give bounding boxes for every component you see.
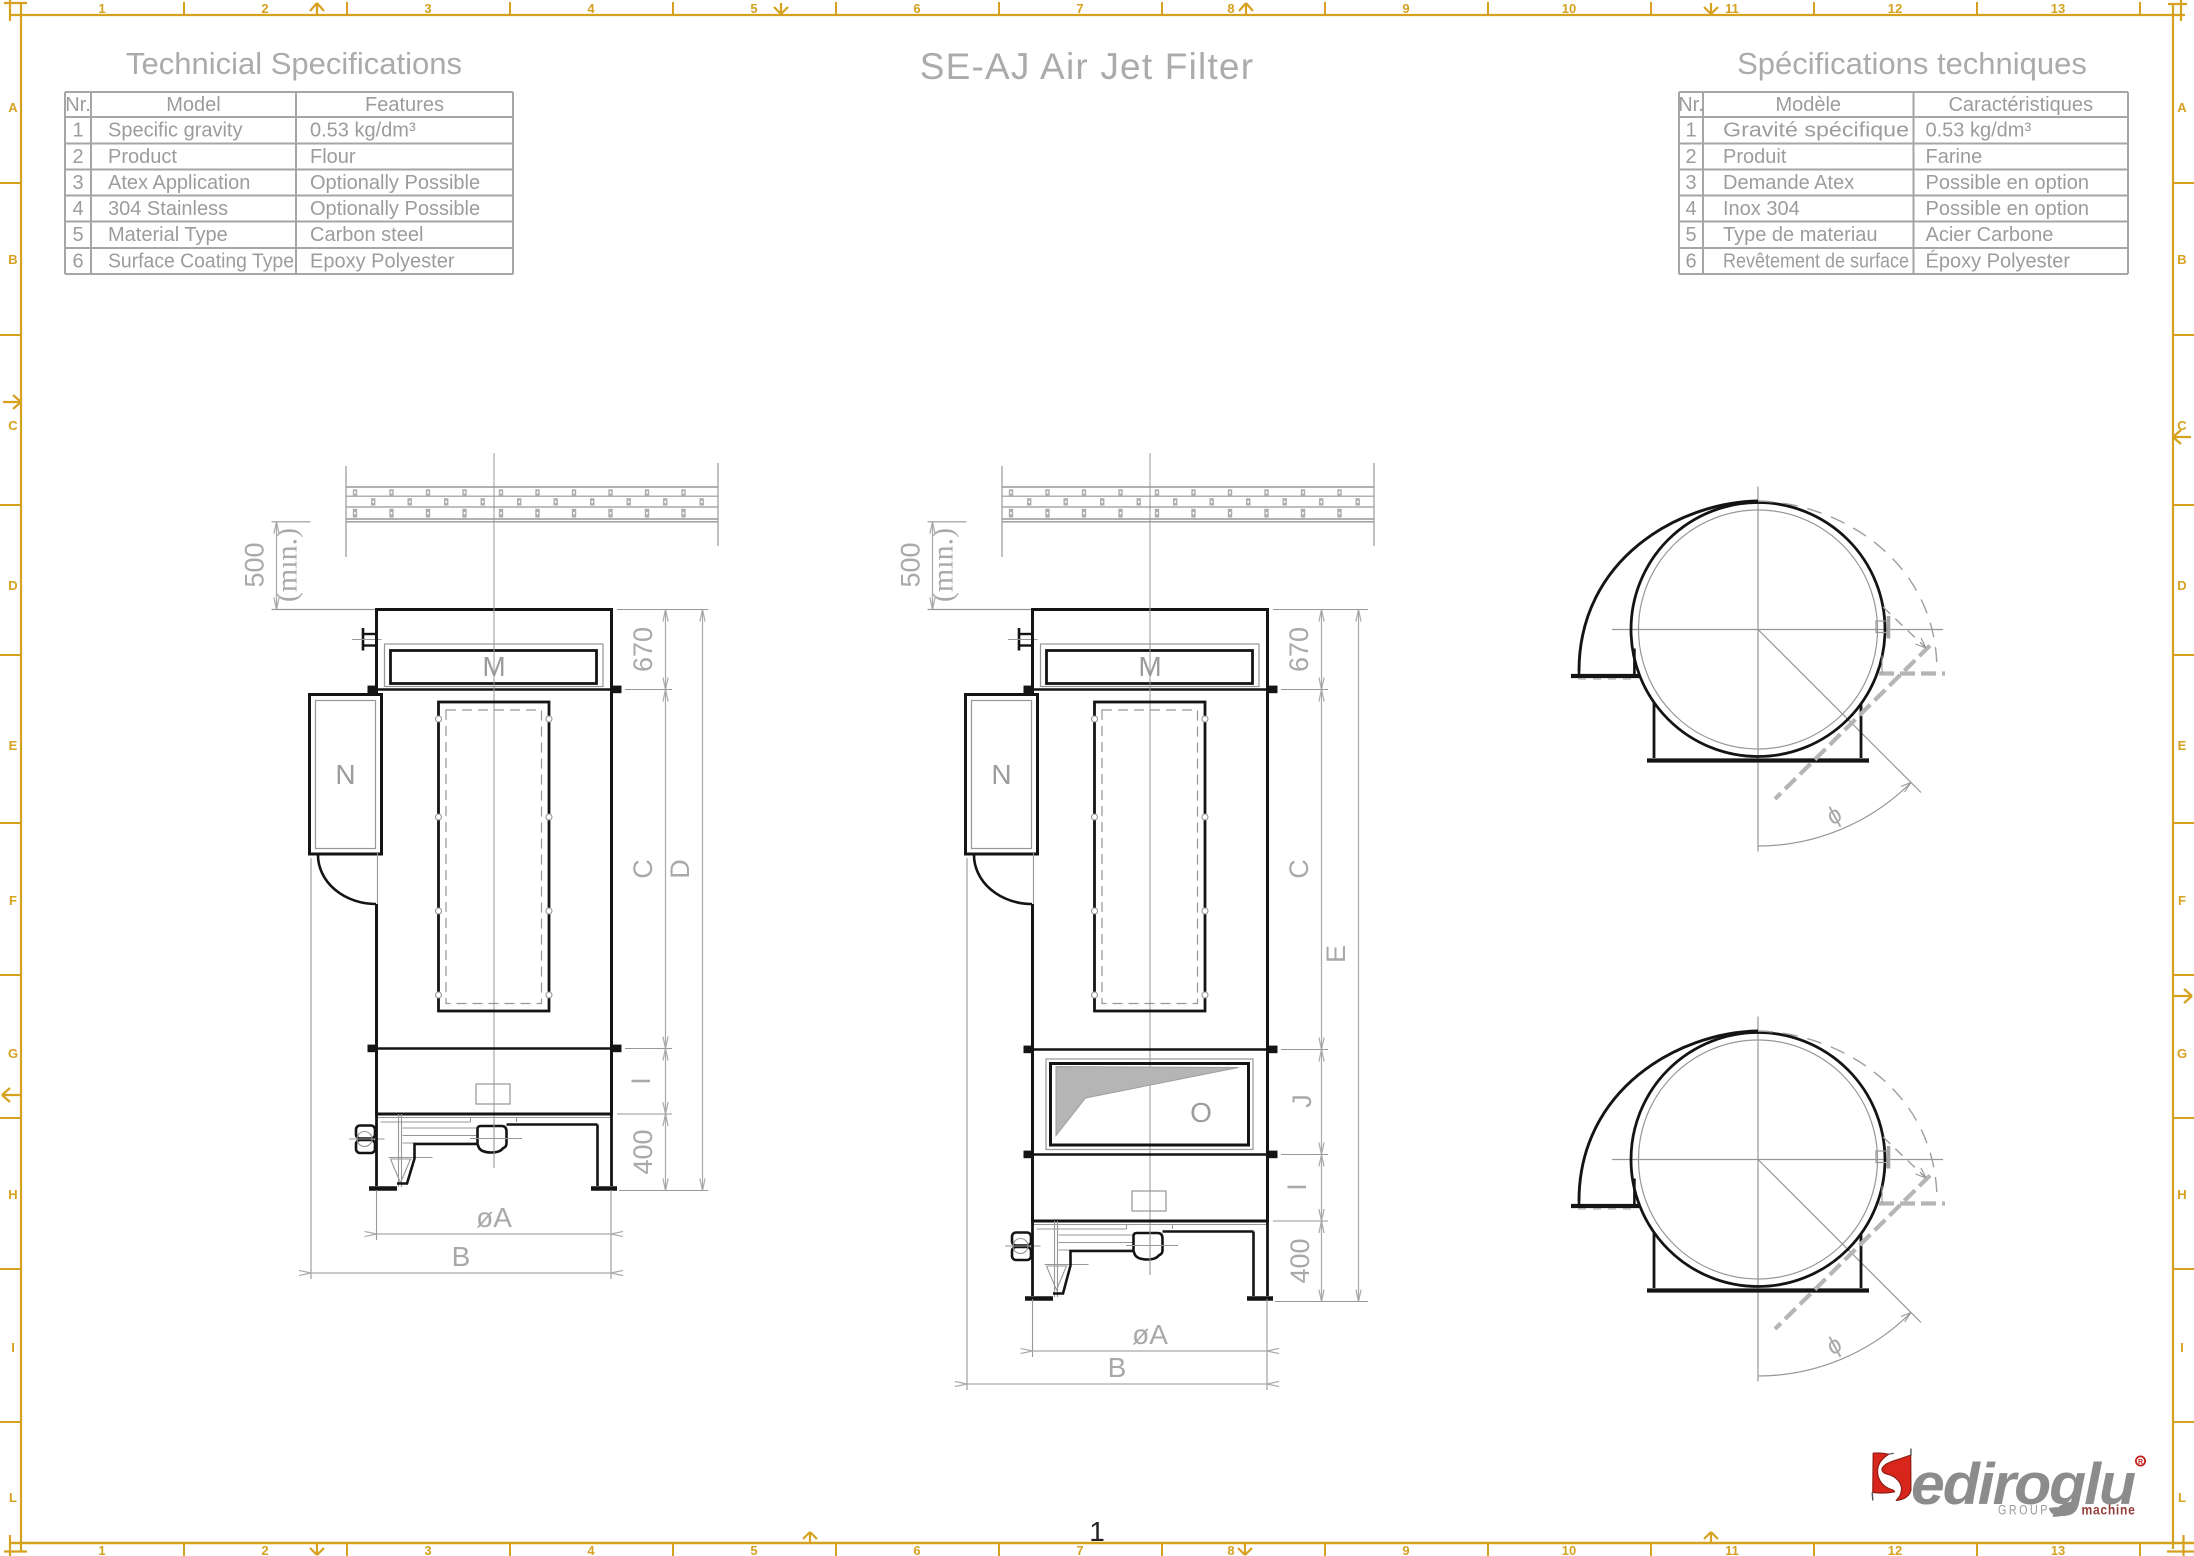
svg-text:1: 1 — [98, 1543, 105, 1556]
svg-text:C: C — [628, 859, 658, 879]
svg-text:Caractéristiques: Caractéristiques — [1948, 94, 2093, 116]
svg-text:A: A — [8, 100, 18, 115]
svg-text:0.53 kg/dm³: 0.53 kg/dm³ — [310, 120, 416, 142]
svg-text:Optionally Possible: Optionally Possible — [310, 172, 480, 194]
svg-text:Gravité spécifique: Gravité spécifique — [1723, 120, 1909, 142]
svg-text:500: 500 — [240, 542, 270, 587]
svg-text:D: D — [8, 578, 17, 593]
svg-text:500: 500 — [896, 542, 926, 587]
svg-text:4: 4 — [72, 198, 83, 220]
svg-text:Modèle: Modèle — [1775, 94, 1841, 116]
svg-text:E: E — [1321, 945, 1351, 963]
svg-text:Époxy Polyester: Époxy Polyester — [1926, 250, 2071, 273]
svg-text:E: E — [9, 738, 18, 753]
svg-text:Farine: Farine — [1926, 146, 1983, 168]
svg-text:13: 13 — [2051, 1, 2065, 16]
svg-text:Product: Product — [108, 146, 177, 168]
svg-text:Acier Carbone: Acier Carbone — [1926, 224, 2054, 246]
svg-text:4: 4 — [1685, 198, 1696, 220]
svg-text:J: J — [1287, 1094, 1317, 1108]
svg-text:400: 400 — [1285, 1238, 1315, 1283]
svg-text:5: 5 — [750, 1543, 757, 1556]
svg-text:6: 6 — [913, 1, 920, 16]
svg-text:6: 6 — [913, 1543, 920, 1556]
svg-text:øA: øA — [476, 1202, 512, 1233]
svg-text:C: C — [1284, 859, 1314, 879]
svg-text:6: 6 — [72, 251, 83, 273]
svg-text:GROUP: GROUP — [1998, 1503, 2050, 1518]
svg-text:5: 5 — [1685, 224, 1696, 246]
svg-text:11: 11 — [1725, 1543, 1739, 1556]
svg-text:H: H — [8, 1187, 17, 1202]
svg-text:B: B — [452, 1241, 471, 1272]
svg-text:Features: Features — [365, 94, 444, 116]
svg-text:6: 6 — [1685, 251, 1696, 273]
svg-text:2: 2 — [261, 1, 268, 16]
svg-text:B: B — [2177, 252, 2186, 267]
svg-text:F: F — [9, 893, 17, 908]
svg-text:Spécifications techniques: Spécifications techniques — [1737, 46, 2087, 81]
svg-text:Technicial Specifications: Technicial Specifications — [126, 46, 462, 81]
svg-text:9: 9 — [1402, 1543, 1409, 1556]
svg-text:4: 4 — [587, 1543, 595, 1556]
svg-text:12: 12 — [1888, 1543, 1902, 1556]
svg-text:2: 2 — [1685, 146, 1696, 168]
svg-text:12: 12 — [1888, 1, 1902, 16]
svg-text:R: R — [2138, 1459, 2143, 1466]
svg-text:Inox 304: Inox 304 — [1723, 198, 1800, 220]
svg-text:Epoxy Polyester: Epoxy Polyester — [310, 251, 455, 273]
svg-text:1: 1 — [98, 1, 105, 16]
svg-text:10: 10 — [1562, 1543, 1576, 1556]
svg-text:3: 3 — [72, 172, 83, 194]
svg-text:Revêtement de surface: Revêtement de surface — [1723, 251, 1909, 273]
svg-text:670: 670 — [1284, 627, 1314, 672]
svg-text:2: 2 — [72, 146, 83, 168]
svg-text:13: 13 — [2051, 1543, 2065, 1556]
svg-text:0.53 kg/dm³: 0.53 kg/dm³ — [1926, 120, 2032, 142]
svg-text:11: 11 — [1725, 1, 1739, 16]
svg-text:Possible en option: Possible en option — [1926, 198, 2089, 220]
svg-text:4: 4 — [587, 1, 595, 16]
svg-text:I: I — [11, 1340, 15, 1355]
svg-text:Material Type: Material Type — [108, 224, 228, 246]
svg-text:5: 5 — [750, 1, 757, 16]
svg-text:8: 8 — [1227, 1, 1234, 16]
svg-text:D: D — [665, 859, 695, 879]
svg-text:G: G — [2177, 1046, 2187, 1061]
svg-text:B: B — [8, 252, 17, 267]
svg-text:L: L — [2178, 1490, 2186, 1505]
svg-text:SE-AJ Air Jet Filter: SE-AJ Air Jet Filter — [920, 46, 1254, 87]
svg-text:N: N — [991, 759, 1011, 790]
svg-text:7: 7 — [1076, 1, 1083, 16]
svg-text:I: I — [2180, 1340, 2184, 1355]
svg-text:machine: machine — [2082, 1502, 2136, 1518]
svg-text:G: G — [8, 1046, 18, 1061]
svg-text:Flour: Flour — [310, 146, 356, 168]
svg-text:B: B — [1108, 1352, 1127, 1383]
svg-text:304 Stainless: 304 Stainless — [108, 198, 228, 220]
svg-text:(mın.): (mın.) — [271, 528, 304, 602]
svg-text:670: 670 — [628, 627, 658, 672]
svg-text:3: 3 — [424, 1, 431, 16]
svg-text:H: H — [2177, 1187, 2186, 1202]
svg-text:Optionally Possible: Optionally Possible — [310, 198, 480, 220]
svg-text:I: I — [1282, 1183, 1312, 1191]
svg-text:2: 2 — [261, 1543, 268, 1556]
svg-text:Nr.: Nr. — [65, 94, 91, 116]
svg-text:L: L — [9, 1490, 17, 1505]
svg-text:1: 1 — [1685, 120, 1696, 142]
svg-text:Specific gravity: Specific gravity — [108, 120, 243, 142]
svg-text:E: E — [2178, 738, 2187, 753]
svg-text:øA: øA — [1132, 1319, 1168, 1350]
svg-text:3: 3 — [1685, 172, 1696, 194]
svg-text:Produit: Produit — [1723, 146, 1787, 168]
svg-text:O: O — [1190, 1097, 1212, 1128]
svg-text:(mın.): (mın.) — [927, 528, 960, 602]
svg-text:Nr.: Nr. — [1678, 94, 1704, 116]
svg-text:Atex Application: Atex Application — [108, 172, 250, 194]
svg-text:C: C — [8, 418, 18, 433]
svg-text:A: A — [2177, 100, 2187, 115]
svg-text:1: 1 — [72, 120, 83, 142]
svg-text:10: 10 — [1562, 1, 1576, 16]
svg-text:Possible en option: Possible en option — [1926, 172, 2089, 194]
svg-text:F: F — [2178, 893, 2186, 908]
svg-text:9: 9 — [1402, 1, 1409, 16]
svg-text:Demande Atex: Demande Atex — [1723, 172, 1854, 194]
svg-text:5: 5 — [72, 224, 83, 246]
svg-text:Type de materiau: Type de materiau — [1723, 224, 1878, 246]
svg-text:400: 400 — [628, 1129, 658, 1174]
svg-text:1: 1 — [1089, 1516, 1105, 1547]
svg-text:3: 3 — [424, 1543, 431, 1556]
svg-text:7: 7 — [1076, 1543, 1083, 1556]
svg-text:Carbon steel: Carbon steel — [310, 224, 423, 246]
svg-text:I: I — [626, 1077, 656, 1085]
svg-text:8: 8 — [1227, 1543, 1234, 1556]
svg-text:Surface Coating Type: Surface Coating Type — [108, 251, 294, 273]
svg-text:D: D — [2177, 578, 2186, 593]
svg-text:Model: Model — [166, 94, 220, 116]
svg-text:N: N — [335, 759, 355, 790]
